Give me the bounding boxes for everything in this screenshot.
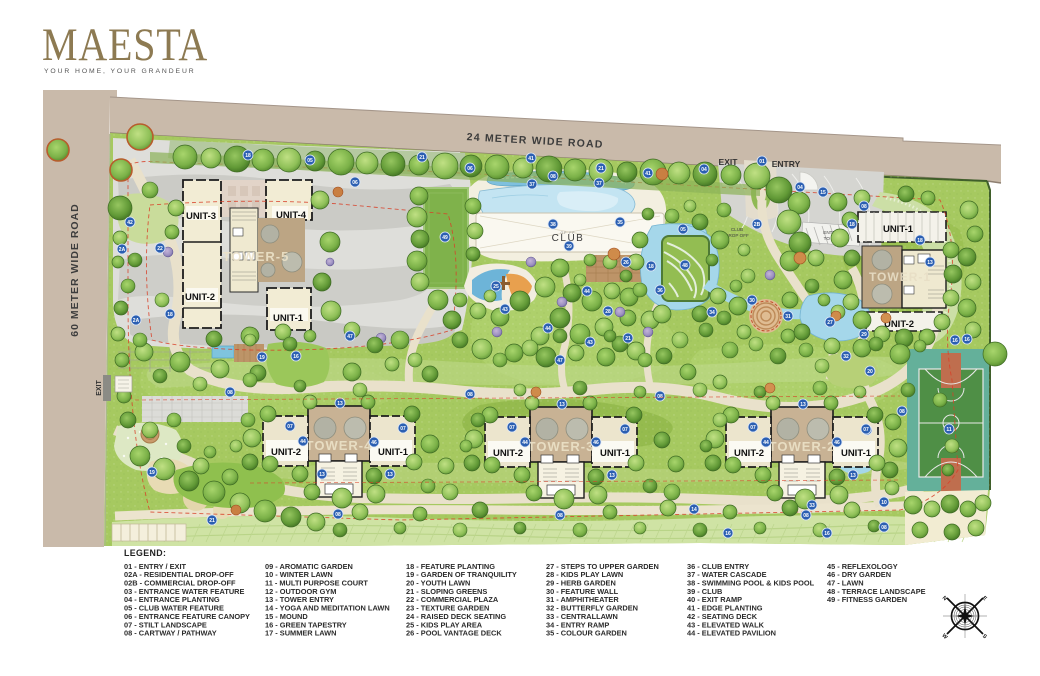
svg-text:26: 26 — [623, 260, 629, 266]
svg-text:EXIT: EXIT — [96, 379, 103, 395]
svg-text:13: 13 — [850, 473, 856, 479]
svg-text:TOWER-3: TOWER-3 — [528, 439, 595, 454]
svg-text:11: 11 — [946, 427, 952, 433]
svg-text:08: 08 — [899, 409, 905, 415]
svg-text:16: 16 — [952, 338, 958, 344]
svg-text:08: 08 — [227, 390, 233, 396]
svg-text:CLUB: CLUB — [731, 227, 743, 232]
svg-text:33: 33 — [809, 503, 815, 509]
svg-text:07: 07 — [287, 424, 293, 430]
svg-text:06: 06 — [467, 166, 473, 172]
svg-text:44: 44 — [584, 289, 590, 295]
svg-text:47: 47 — [347, 334, 353, 340]
svg-text:UNIT-1: UNIT-1 — [273, 313, 304, 324]
svg-text:48: 48 — [682, 263, 688, 269]
svg-text:TOWER-4: TOWER-4 — [306, 438, 373, 453]
svg-text:41: 41 — [645, 171, 651, 177]
svg-text:44: 44 — [300, 439, 306, 445]
svg-text:28: 28 — [605, 309, 611, 315]
svg-text:2B: 2B — [754, 222, 761, 228]
svg-text:UNIT-2: UNIT-2 — [734, 448, 764, 459]
svg-text:2A: 2A — [133, 318, 140, 324]
svg-text:39: 39 — [566, 244, 572, 250]
svg-text:05: 05 — [307, 158, 313, 164]
svg-text:UNIT-1: UNIT-1 — [841, 448, 872, 459]
svg-text:21: 21 — [419, 155, 425, 161]
svg-text:UNIT-1: UNIT-1 — [600, 448, 631, 459]
svg-text:YOUR HOME, YOUR GRANDEUR: YOUR HOME, YOUR GRANDEUR — [44, 68, 196, 75]
svg-text:29: 29 — [861, 332, 867, 338]
svg-text:44: 44 — [545, 326, 551, 332]
svg-text:30: 30 — [749, 298, 755, 304]
svg-text:36: 36 — [657, 288, 663, 294]
svg-text:46: 46 — [593, 440, 599, 446]
svg-text:08: 08 — [657, 394, 663, 400]
svg-text:UNIT-2: UNIT-2 — [185, 292, 215, 303]
svg-text:26 - POOL VANTAGE DECK: 26 - POOL VANTAGE DECK — [406, 629, 502, 638]
svg-text:13: 13 — [609, 473, 615, 479]
svg-text:18: 18 — [917, 238, 923, 244]
svg-text:ENTRY: ENTRY — [772, 159, 801, 169]
svg-text:18: 18 — [849, 222, 855, 228]
svg-text:TOWER-5: TOWER-5 — [223, 249, 290, 264]
svg-text:19: 19 — [259, 355, 265, 361]
svg-text:47: 47 — [557, 358, 563, 364]
svg-text:21: 21 — [598, 166, 604, 172]
svg-text:35: 35 — [617, 220, 623, 226]
svg-text:08: 08 — [881, 525, 887, 531]
svg-text:25: 25 — [493, 284, 499, 290]
svg-text:44 - ELEVATED PAVILION: 44 - ELEVATED PAVILION — [687, 629, 776, 638]
svg-text:08: 08 — [861, 204, 867, 210]
svg-text:16: 16 — [824, 531, 830, 537]
svg-text:08 - CARTWAY / PATHWAY: 08 - CARTWAY / PATHWAY — [124, 629, 217, 638]
svg-text:21: 21 — [209, 518, 215, 524]
svg-text:06: 06 — [352, 180, 358, 186]
svg-text:MAESTA: MAESTA — [42, 19, 208, 71]
svg-text:19: 19 — [149, 470, 155, 476]
svg-text:18: 18 — [648, 264, 654, 270]
svg-text:60 METER WIDE ROAD: 60 METER WIDE ROAD — [69, 203, 81, 337]
svg-text:43: 43 — [502, 307, 508, 313]
svg-text:43: 43 — [587, 340, 593, 346]
svg-text:44: 44 — [763, 440, 769, 446]
svg-text:08: 08 — [557, 513, 563, 519]
svg-text:07: 07 — [509, 425, 515, 431]
svg-text:32: 32 — [843, 354, 849, 360]
svg-text:13: 13 — [387, 472, 393, 478]
svg-text:37: 37 — [596, 181, 602, 187]
svg-text:46: 46 — [371, 440, 377, 446]
svg-text:16: 16 — [964, 337, 970, 343]
svg-text:07: 07 — [400, 426, 406, 432]
svg-text:01: 01 — [759, 159, 765, 165]
svg-text:49: 49 — [442, 235, 448, 241]
svg-text:13: 13 — [559, 402, 565, 408]
svg-text:TOWER-1: TOWER-1 — [869, 270, 931, 284]
svg-text:44: 44 — [522, 440, 528, 446]
svg-text:UNIT-2: UNIT-2 — [271, 447, 301, 458]
svg-text:17 - SUMMER LAWN: 17 - SUMMER LAWN — [265, 629, 336, 638]
svg-text:34: 34 — [709, 310, 715, 316]
svg-text:UNIT-1: UNIT-1 — [378, 447, 409, 458]
svg-text:21: 21 — [625, 336, 631, 342]
svg-text:37: 37 — [529, 182, 535, 188]
svg-text:TOWER-2: TOWER-2 — [769, 439, 836, 454]
svg-text:27: 27 — [827, 320, 833, 326]
svg-text:35 - COLOUR GARDEN: 35 - COLOUR GARDEN — [546, 629, 627, 638]
svg-text:UNIT-2: UNIT-2 — [493, 448, 523, 459]
svg-text:10: 10 — [881, 500, 887, 506]
svg-text:UNIT-3: UNIT-3 — [186, 211, 216, 222]
svg-text:08: 08 — [550, 174, 556, 180]
svg-text:13: 13 — [800, 402, 806, 408]
svg-text:07: 07 — [622, 427, 628, 433]
svg-text:13: 13 — [927, 260, 933, 266]
svg-text:31: 31 — [785, 314, 791, 320]
svg-text:05: 05 — [680, 227, 686, 233]
svg-text:15: 15 — [820, 190, 826, 196]
svg-text:07: 07 — [750, 425, 756, 431]
svg-text:04: 04 — [701, 167, 707, 173]
svg-text:13: 13 — [319, 472, 325, 478]
svg-text:14: 14 — [691, 507, 697, 513]
svg-text:16: 16 — [293, 354, 299, 360]
svg-text:42: 42 — [127, 220, 133, 226]
svg-text:18: 18 — [245, 153, 251, 159]
svg-text:46: 46 — [834, 440, 840, 446]
svg-text:2A: 2A — [119, 247, 126, 253]
svg-text:49 - FITNESS GARDEN: 49 - FITNESS GARDEN — [827, 595, 907, 604]
svg-text:08: 08 — [335, 512, 341, 518]
svg-text:38: 38 — [550, 222, 556, 228]
svg-text:18: 18 — [167, 312, 173, 318]
svg-text:08: 08 — [467, 392, 473, 398]
svg-text:41: 41 — [528, 156, 534, 162]
svg-text:04: 04 — [797, 185, 803, 191]
svg-text:22: 22 — [157, 246, 163, 252]
svg-text:UNIT-1: UNIT-1 — [883, 224, 914, 235]
svg-text:UNIT-4: UNIT-4 — [276, 210, 307, 221]
svg-text:07: 07 — [863, 427, 869, 433]
svg-text:20: 20 — [867, 369, 873, 375]
svg-text:LEGEND:: LEGEND: — [124, 548, 166, 558]
svg-text:13: 13 — [337, 401, 343, 407]
svg-text:16: 16 — [725, 531, 731, 537]
svg-text:08: 08 — [803, 513, 809, 519]
